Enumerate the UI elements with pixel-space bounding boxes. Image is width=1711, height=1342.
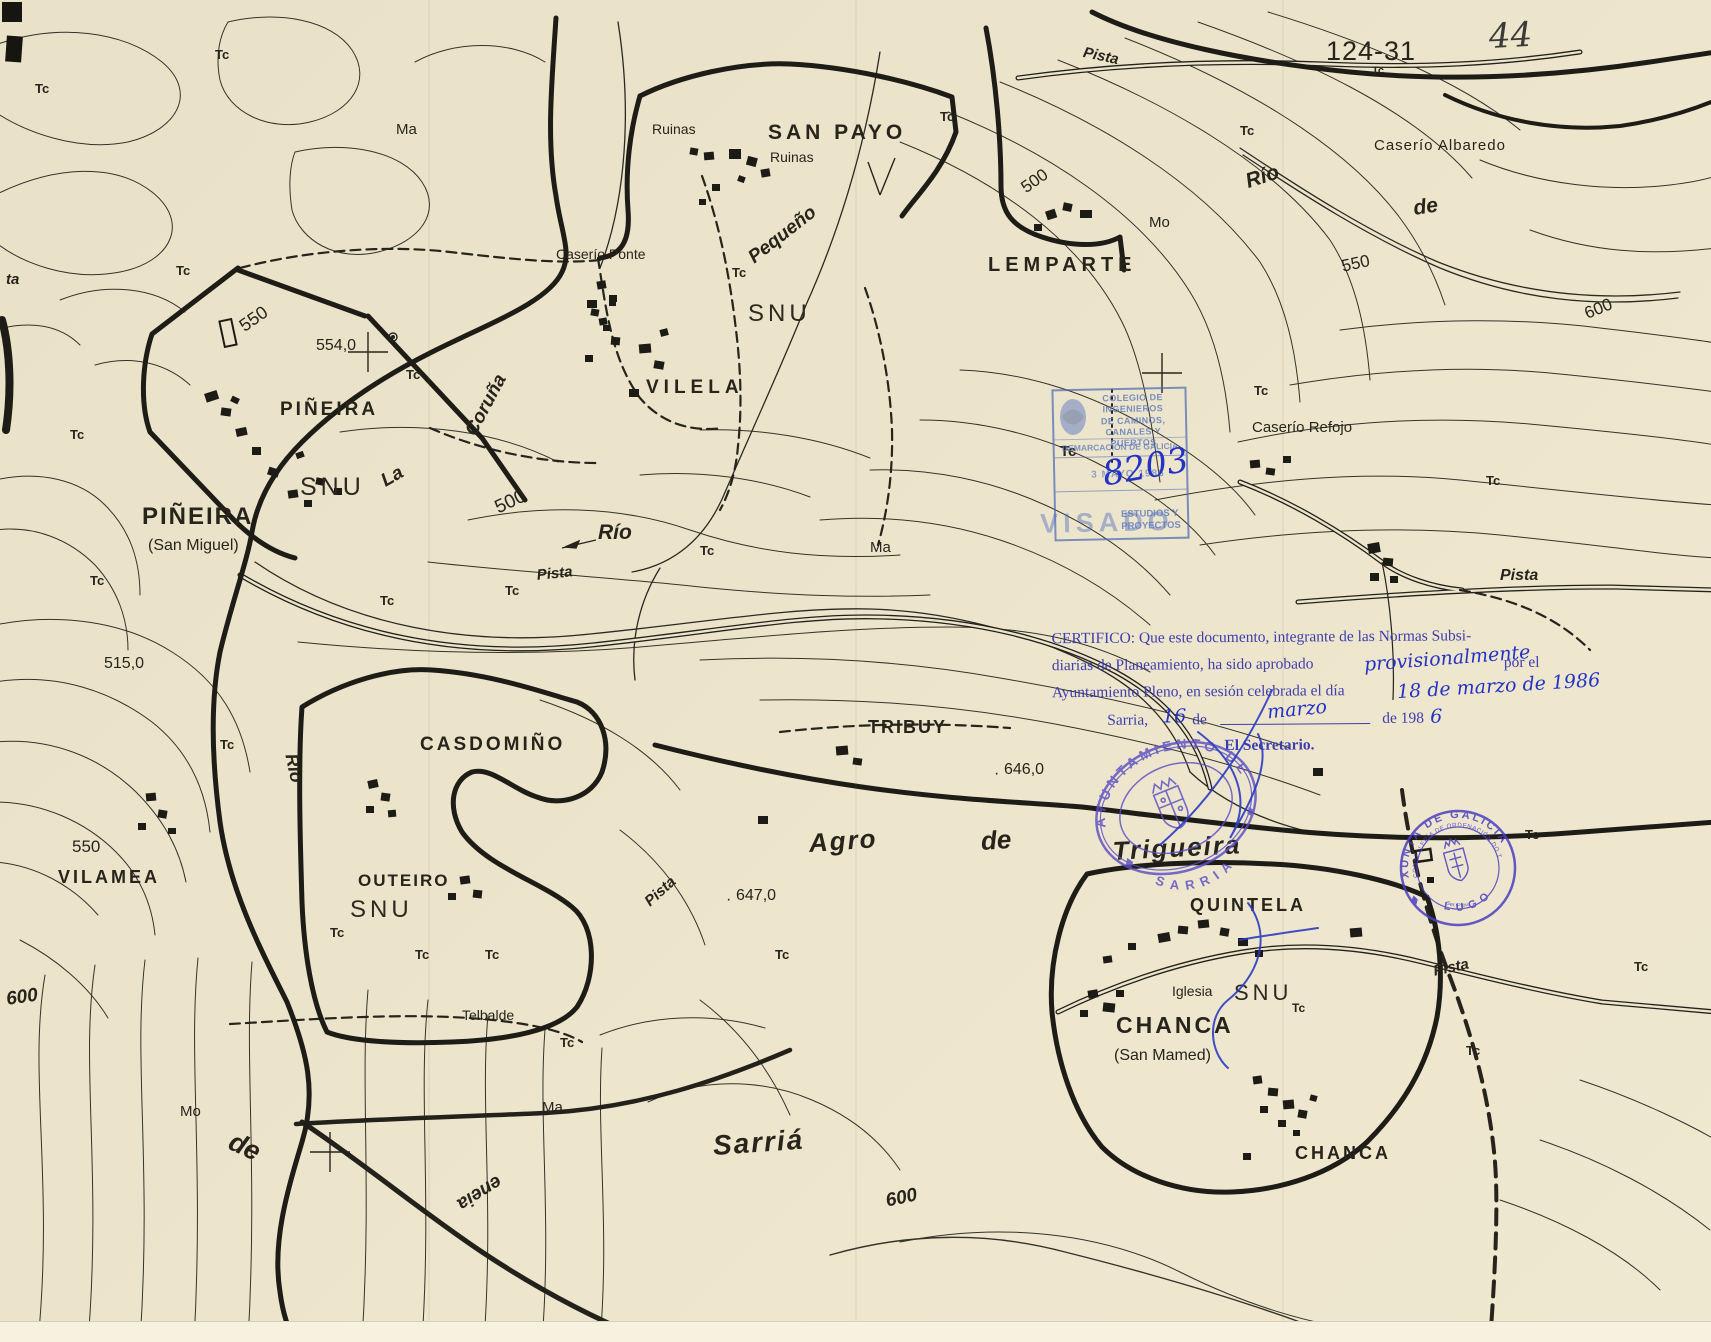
- stamp-coat-of-arms: [1150, 776, 1193, 832]
- blue-stamps-overlay: AYUNTAMIENTO DE SARRIA XUNTA DE GALICIA …: [0, 0, 1711, 1342]
- paper-edge: [0, 1321, 1711, 1342]
- xunta-galicia-stamp: XUNTA DE GALICIA CONSELLERÍA DE ORDENACI…: [0, 10, 1529, 1301]
- stamp-coat-of-arms: [1441, 836, 1471, 883]
- scanned-topographic-map: 124-31 Tc 44 Tc Tc Tc Tc Tc Tc Tc Tc Tc …: [0, 0, 1711, 1342]
- ayuntamiento-sarria-stamp: AYUNTAMIENTO DE SARRIA: [1071, 711, 1288, 920]
- stamp-arc-text-top: XUNTA DE GALICIA: [1386, 796, 1513, 881]
- stamp-arc-text-inner: CONSELLERÍA DE ORDENACIÓN DO TERRITORIO: [0, 13, 1503, 1248]
- svg-text:XUNTA DE GALICIA: XUNTA DE GALICIA: [1386, 796, 1513, 881]
- svg-text:CONSELLERÍA DE ORDENACIÓN DO T: CONSELLERÍA DE ORDENACIÓN DO TERRITORIO: [0, 13, 1503, 1248]
